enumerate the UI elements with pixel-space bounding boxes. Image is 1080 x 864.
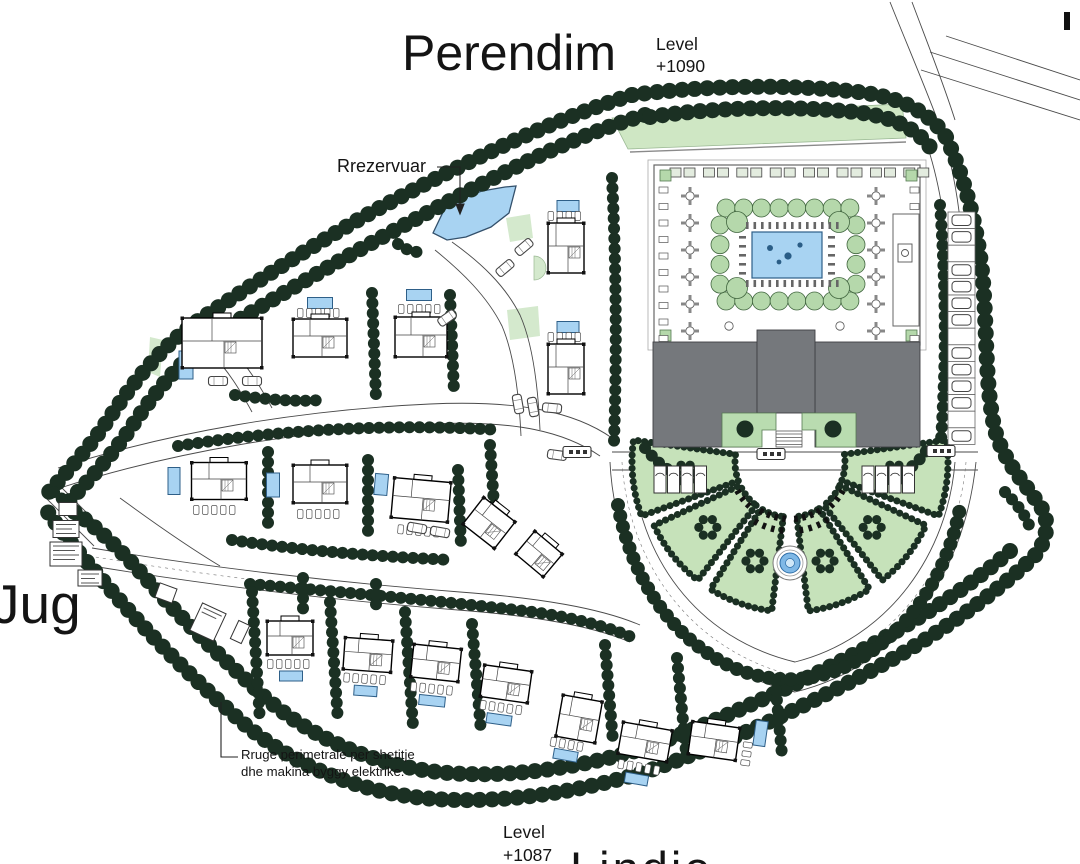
courtyard-seat [684,168,695,177]
car [527,397,539,417]
lounge-chair [419,683,425,693]
car [542,403,562,414]
villa-plan [556,695,603,743]
plaza-chair [782,515,786,522]
parked-car [952,348,971,359]
courtyard-seat [870,168,881,177]
small-building [59,503,77,516]
lounge-chair [743,742,753,749]
courtyard-tree [752,199,770,217]
villa-porch [281,616,299,621]
parked-car [952,315,971,326]
villa [547,201,586,275]
villa [179,313,264,379]
lounge-chair [325,510,331,519]
table [872,327,880,335]
villa-plan [293,465,347,503]
courtyard-seat [851,168,862,177]
shuttle-bus [757,449,785,460]
lounge-chair [371,675,377,684]
label-level-top-word: Level [656,34,705,56]
lounge-chair [435,305,441,314]
lounge-chair [410,682,416,692]
villa-pool [280,671,303,681]
villa [292,298,349,359]
courtyard-seat [837,168,848,177]
parked-car [952,298,971,309]
courtyard-tree [752,292,770,310]
villa-porch [213,313,231,318]
courtyard-seat [784,168,795,177]
courtyard-seat [884,168,895,177]
entry-stairs [776,431,802,447]
car [209,377,228,386]
parked-car [952,364,971,375]
entry-gardens [722,413,856,447]
villa-pool [354,685,378,697]
plaza-parking-stall [889,466,901,493]
lounge-chair [575,212,581,221]
edge-text-fragment [1064,12,1070,30]
shuttle-bus [563,447,591,458]
label-lindje: Lindje [570,841,713,864]
parking-strip [948,212,975,444]
hotel-building [653,330,920,447]
table [686,327,694,335]
table [686,246,694,254]
lounge-chair [653,766,660,776]
villa-plan [267,621,313,655]
courtyard-tree [806,292,824,310]
lounge-chair [498,703,505,713]
lounge-chair [618,759,625,769]
label-level-top-value: +1090 [656,56,705,78]
entry-tree [825,421,842,438]
table [686,192,694,200]
courtyard-seat [703,168,714,177]
courtyard-seat [818,168,829,177]
car [495,258,515,277]
note-line1: Rruge perimetrale per shetitje [241,746,415,763]
lounge-chair [397,525,403,534]
lounge-chair [428,684,434,694]
villa-plan [343,637,393,672]
villa [267,460,349,519]
parked-car [952,281,971,292]
lounge-chair [550,737,557,747]
hotel-right-wing [893,214,919,326]
table [872,300,880,308]
lounge-chair [353,674,359,683]
lounge-chair [362,674,368,683]
lounge-chair [277,660,283,669]
lounge-chair [298,309,304,318]
lounge-chair [298,510,304,519]
villa-plan [463,497,515,548]
courtyard-seat [770,168,781,177]
lounge-chair [203,506,209,515]
table [872,192,880,200]
label-level-bottom-word: Level [503,821,552,844]
label-perendim: Perendim [402,24,616,82]
villa-pool [557,201,579,212]
lounge-chair [626,761,633,771]
lounge-chair [576,742,583,752]
lounge-chair [480,700,487,710]
villa [168,458,248,515]
lounge-chair [212,506,218,515]
table [686,300,694,308]
villa-plan [548,223,584,273]
label-level-bottom-value: +1087 [503,844,552,864]
lounge-chair [334,510,340,519]
note-line2: dhe makina byggy elektrike. [241,763,415,780]
courtyard-seat [918,168,929,177]
table [872,273,880,281]
plaza-parking-stall [876,466,888,493]
small-building [50,542,82,566]
villa-pool [267,473,280,497]
courtyard-seat [717,168,728,177]
plaza-parking-stall [903,466,915,493]
villa-plan [516,531,563,577]
lounge-chair [742,751,752,758]
lounge-chair [559,739,566,749]
table [872,246,880,254]
lounge-chair [379,675,385,684]
parked-car [952,431,971,442]
parked-car [952,398,971,409]
parked-car [952,381,971,392]
label-level-bottom: Level+1087 [503,821,552,864]
car [512,394,524,414]
lounge-chair [194,506,200,515]
courtyard-tree [788,292,806,310]
villa-pool [557,322,579,333]
lounge-chair [446,686,452,696]
villa-pool [419,694,446,707]
villa-porch [311,460,329,465]
car [430,526,450,538]
lounge-chair [568,740,575,750]
label-rrezervuar: Rrezervuar [337,156,426,177]
villa-pool [308,298,333,309]
lounge-chair [635,762,642,772]
small-building [230,620,249,643]
lounge-chair [575,333,581,342]
site-plan-page: Perendim Level+1090 Rrezervuar Jug Rruge… [0,0,1080,864]
lounge-chair [268,660,274,669]
plaza-parking-stall [668,466,680,493]
villa-porch [311,314,329,319]
lounge-chair [304,660,310,669]
lounge-chair [230,506,236,515]
plaza-parking-stall [862,466,874,493]
lounge-chair [221,506,227,515]
label-perimeter-road-note: Rruge perimetrale per shetitjedhe makina… [241,746,415,781]
lounge-chair [506,704,513,714]
villa-porch [557,339,575,344]
parked-car [952,215,971,226]
lounge-chair [548,333,554,342]
lounge-chair [489,701,496,711]
lounge-chair [515,705,522,715]
villa-porch [412,312,430,317]
car [243,377,262,386]
plaza-fountain [773,546,807,580]
parked-car [952,265,971,276]
label-level-top: Level+1090 [656,34,705,78]
villa-plan [182,318,262,368]
plaza-parking-stall [654,466,666,493]
villa-pool [553,748,578,762]
courtyard-tree [770,292,788,310]
lounge-chair [286,660,292,669]
site-plan-drawing [0,0,1080,864]
courtyard-tree [770,199,788,217]
lounge-chair [740,759,750,766]
villa-plan [192,463,247,500]
small-building [78,570,102,586]
lounge-chair [334,309,340,318]
villa [340,632,395,697]
villa-plan [293,319,347,357]
table [872,219,880,227]
lounge-chair [644,764,651,774]
villa-pool [374,473,389,495]
lounge-chair [316,510,322,519]
villa-plan [548,344,584,394]
courtyard-tree [788,199,806,217]
label-jug: Jug [0,572,81,636]
courtyard-seat [737,168,748,177]
courtyard-tree [806,199,824,217]
lounge-chair [399,305,405,314]
villa-pool [486,713,512,726]
plaza-parking-stall [695,466,707,493]
lounge-chair [437,685,443,695]
parking-stall [948,328,975,345]
villa [547,322,586,396]
small-building [53,521,79,538]
villa-porch [557,218,575,223]
lounge-chair [344,673,350,682]
plaza-chair [794,515,798,522]
villa [513,526,566,579]
lounge-chair [307,510,313,519]
villa-pool [407,290,432,301]
courtyard-seat [670,168,681,177]
entry-tree [737,421,754,438]
courtyard-seat [804,168,815,177]
table [686,219,694,227]
villa [266,616,315,681]
lounge-chair [295,660,301,669]
plaza-parking-stall [681,466,693,493]
villa-porch [210,458,228,463]
parking-stall [948,245,975,262]
table [686,273,694,281]
parking-stall [948,411,975,428]
parked-car [952,232,971,243]
villa-pool [168,468,180,495]
shuttle-bus [927,446,955,457]
lounge-chair [548,212,554,221]
courtyard-seat [751,168,762,177]
